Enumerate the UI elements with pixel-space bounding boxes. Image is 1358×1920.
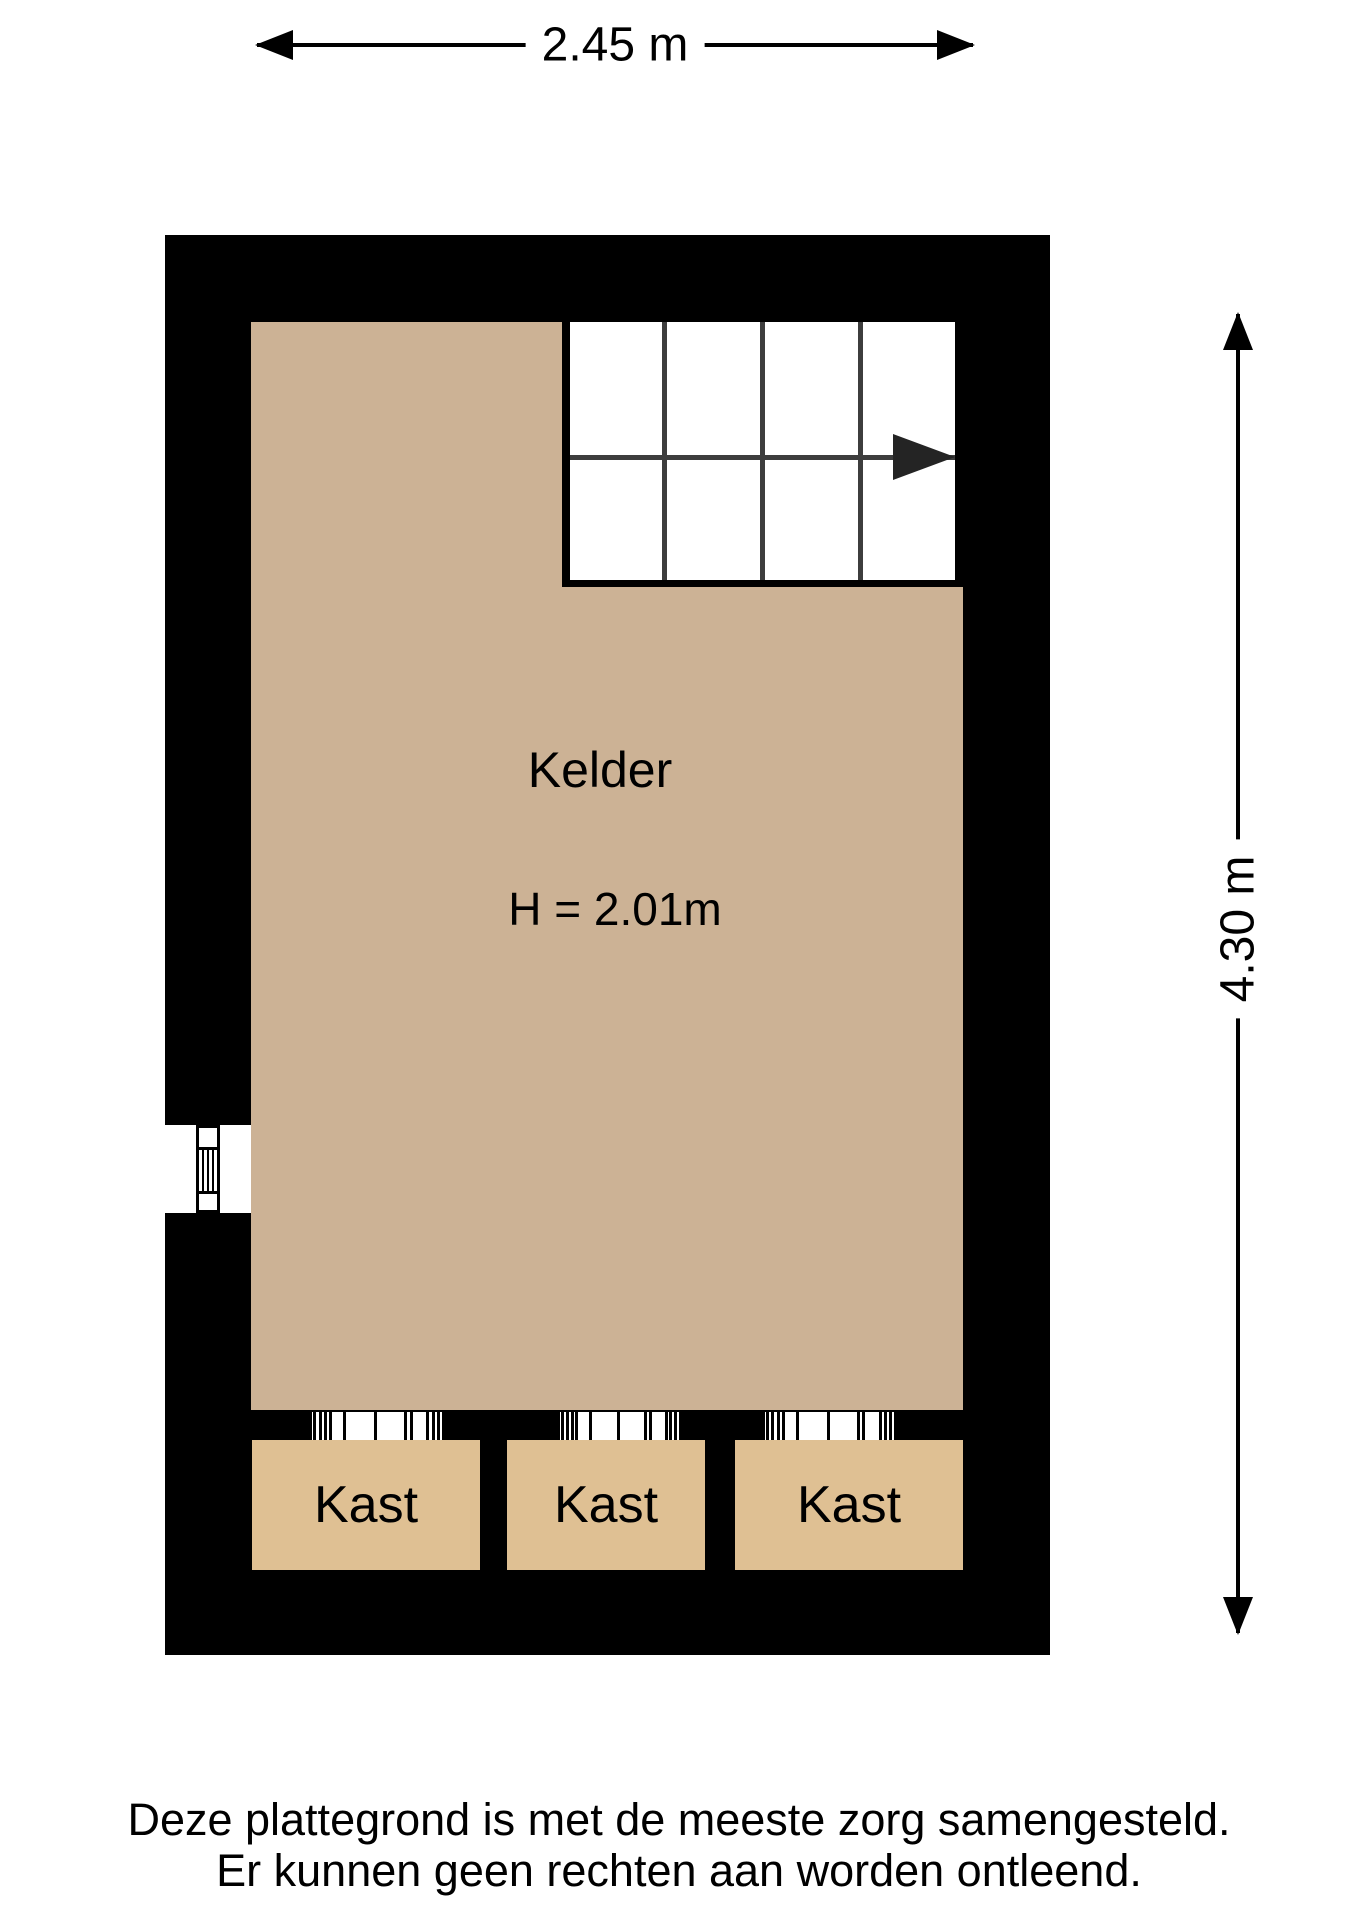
height-dimension: 4.30 m bbox=[1214, 312, 1262, 1635]
closet-1-label: Kast bbox=[314, 1475, 418, 1535]
window-frame-bar bbox=[199, 1191, 217, 1194]
ceiling-height-label: H = 2.01m bbox=[465, 882, 765, 936]
footer-disclaimer: Deze plattegrond is met de meeste zorg s… bbox=[0, 1794, 1358, 1896]
closet-2-label: Kast bbox=[554, 1475, 658, 1535]
stair-tread-line bbox=[662, 322, 667, 580]
closet-door-hatch-2 bbox=[560, 1412, 682, 1440]
stair-tread-line bbox=[858, 322, 863, 580]
height-dimension-label: 4.30 m bbox=[1211, 840, 1266, 1019]
arrow-left-icon bbox=[255, 30, 293, 60]
disclaimer-line-1: Deze plattegrond is met de meeste zorg s… bbox=[0, 1794, 1358, 1845]
stair-tread-line bbox=[760, 322, 765, 580]
window-glass-line bbox=[212, 1150, 214, 1191]
disclaimer-line-2: Er kunnen geen rechten aan worden ontlee… bbox=[0, 1845, 1358, 1896]
closet-2: Kast bbox=[507, 1440, 705, 1570]
floorplan-canvas: 2.45 m 4.30 m bbox=[0, 0, 1358, 1920]
closet-door-hatch-3 bbox=[765, 1412, 897, 1440]
closet-1: Kast bbox=[252, 1440, 480, 1570]
arrow-right-icon bbox=[937, 30, 975, 60]
floor-plan: Kast Kast Kast bbox=[165, 235, 1050, 1655]
arrow-up-icon bbox=[1223, 312, 1253, 350]
closet-door-hatch-1 bbox=[312, 1412, 445, 1440]
closet-3: Kast bbox=[735, 1440, 963, 1570]
window-icon bbox=[165, 1125, 251, 1213]
window-frame bbox=[196, 1125, 220, 1213]
window-glass-line bbox=[202, 1150, 204, 1191]
arrow-down-icon bbox=[1223, 1597, 1253, 1635]
width-dimension: 2.45 m bbox=[255, 22, 975, 68]
window-glass-line bbox=[207, 1150, 209, 1191]
staircase bbox=[562, 322, 963, 587]
room-name-label: Kelder bbox=[450, 741, 750, 799]
width-dimension-label: 2.45 m bbox=[526, 18, 705, 73]
closet-3-label: Kast bbox=[797, 1475, 901, 1535]
stair-direction-arrow-icon bbox=[893, 434, 955, 480]
